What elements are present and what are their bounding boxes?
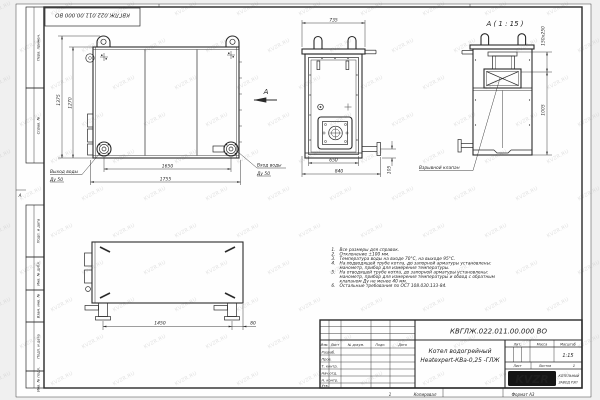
dim-1005: 1005	[541, 104, 547, 116]
return-pipe	[458, 140, 473, 153]
door-hinge	[88, 129, 94, 142]
lifting-lug	[97, 36, 110, 47]
door-hinges	[85, 253, 93, 291]
company-logo: KVZR	[508, 371, 556, 386]
col-data: Дата	[397, 343, 407, 347]
plan-dimensions	[103, 304, 256, 330]
product-name-line2: Heatexpert-КВа-0,25 -ГЛЖ	[420, 358, 500, 364]
mounting-cross	[227, 51, 235, 59]
listov-value: 1	[573, 363, 575, 368]
technical-notes: 1. Все размеры для справок. 2. Отклонени…	[331, 247, 495, 289]
outlet-dn: Ду 50	[49, 177, 63, 183]
doc-designation: КВГЛЖ.022.011.00.000 ВО	[450, 328, 547, 336]
logo-text: KVZR	[515, 373, 548, 386]
margin-sprav-no: Справ. №	[37, 116, 41, 134]
lifting-lug	[348, 37, 356, 50]
drawing-linework: А Перв. примен. Справ. № Подп. и дата Ин…	[0, 0, 600, 400]
masshtab-label: Масштаб	[560, 343, 576, 347]
inlet-label: Вход воды	[257, 163, 282, 169]
stamp-designation: КВГЛЖ.022.011.00.000 ВО	[54, 11, 129, 17]
view-arrow-a: А	[254, 88, 277, 100]
row-tkontr: Т. контр.	[322, 365, 338, 369]
margin-podp-data-1: Подп. и дата	[37, 219, 41, 243]
base-skirt	[473, 150, 532, 153]
massa-label: Масса	[537, 343, 548, 347]
side-view: 735 650 840 105	[302, 18, 396, 178]
dim-80: 80	[250, 321, 256, 327]
note-line: Остальные требования по ОСТ 108.030.133-…	[340, 283, 447, 289]
margin-podp-data-2: Подп. и дата	[37, 334, 41, 358]
dim-1270: 1270	[68, 97, 74, 109]
side-dimensions	[302, 20, 396, 177]
title-block: КВГЛЖ.022.011.00.000 ВО Изм. Лист № доку…	[320, 320, 582, 388]
detail-view-a: А ( 1 : 15 )	[419, 20, 552, 171]
dim-840: 840	[335, 169, 344, 175]
col-docnum: № докум.	[347, 343, 364, 347]
dim-1450: 1450	[154, 321, 166, 327]
plan-view: 1450 80	[85, 242, 257, 330]
return-pipe	[362, 143, 381, 156]
slot	[317, 61, 320, 70]
note-num: 6.	[331, 283, 335, 289]
margin-perv-primen: Перв. примен.	[37, 34, 41, 61]
col-podp: Подп.	[376, 343, 386, 347]
boiler-body-front	[93, 47, 239, 158]
corner-marks	[100, 247, 235, 298]
slot	[346, 61, 349, 70]
view-arrow-label: А	[263, 88, 269, 96]
margin-vzam-inv: Взам. инв. №	[37, 294, 41, 319]
burner-flange	[318, 117, 352, 149]
dim-1650: 1650	[162, 164, 174, 170]
dim-1755: 1755	[160, 177, 172, 183]
note-num: 5.	[331, 270, 335, 276]
col-izm: Изм.	[321, 343, 329, 347]
row-utv: Утв.	[322, 384, 329, 388]
footer-kopiroval: Копировал	[414, 392, 437, 397]
col-list: Лист	[330, 343, 339, 347]
row-prov: Пров.	[322, 358, 332, 362]
zone-marker-a: А	[18, 193, 22, 198]
dim-150x250: 150x250	[541, 26, 547, 46]
listov-label: Листов	[538, 364, 551, 368]
explosion-valve	[484, 52, 521, 88]
sheet-frame: А	[16, 4, 591, 397]
inlet-dn: Ду 50	[256, 171, 270, 177]
legs	[85, 303, 240, 320]
row-nachotd: Нач.отд.	[322, 372, 338, 376]
door-hinge	[88, 114, 94, 127]
valve-label: Взрывной клапан	[419, 165, 460, 171]
row-razrab: Разраб.	[322, 351, 336, 355]
lit-label: Лит.	[513, 343, 522, 347]
product-name-line1: Котел водогрейный	[429, 348, 492, 355]
scale-value: 1:15	[562, 353, 573, 359]
bottom-margin: 1 Копировал Формат А3	[389, 388, 535, 397]
dim-1375: 1375	[56, 94, 62, 106]
mounting-cross	[100, 53, 108, 61]
lifting-lug	[518, 34, 526, 45]
lifting-lug	[226, 36, 239, 47]
note-num: 4.	[331, 261, 335, 267]
inlet-flange	[213, 142, 238, 156]
mounting-cross	[345, 104, 352, 111]
boiler-body-plan	[92, 242, 243, 303]
dim-105: 105	[387, 166, 393, 175]
chimney-stub	[462, 51, 473, 55]
margin-inv-podl: Инв. № подл.	[37, 367, 41, 392]
drawing-sheet: KVZR.RUKVZR.RUKVZR.RUKVZR.RUKVZR.RUKVZR.…	[0, 0, 600, 400]
dim-650: 650	[329, 158, 338, 164]
footer-format: Формат А3	[512, 392, 535, 397]
lifting-lug	[314, 37, 322, 50]
boiler-body-side	[305, 54, 362, 158]
front-view: 1375 1270 1650 1755 Выход воды Ду 50 Вхо…	[49, 36, 286, 185]
dim-735: 735	[329, 18, 338, 24]
detail-view-title: А ( 1 : 15 )	[485, 20, 523, 28]
lifting-lug	[481, 34, 489, 45]
chimney-stub	[365, 50, 376, 54]
outlet-label: Выход воды	[50, 169, 79, 175]
front-dimensions	[50, 36, 286, 185]
door-hinge	[88, 144, 94, 155]
logo-caption-2: ЗАВОД РЭП	[559, 381, 579, 385]
margin-column: Перв. примен. Справ. № Подп. и дата Инв.…	[26, 7, 44, 392]
footer-zone: 1	[389, 392, 392, 397]
row-nkontr: Н. контр.	[322, 379, 339, 383]
margin-inv-dubl: Инв. № дубл.	[37, 261, 41, 286]
logo-caption-1: КОТЕЛЬНЫЙ	[559, 373, 580, 378]
list-label: Лист	[512, 364, 521, 368]
top-stamp: КВГЛЖ.022.011.00.000 ВО	[45, 8, 140, 26]
